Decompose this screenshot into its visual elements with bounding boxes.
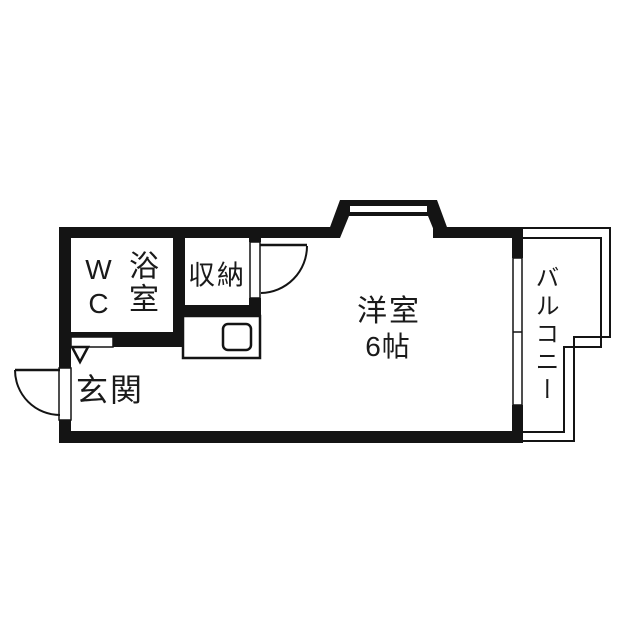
kitchen-sink bbox=[223, 324, 251, 350]
wc-door-swing-marker bbox=[72, 347, 88, 362]
western-room-size-label: 6帖 bbox=[365, 333, 411, 361]
bay-window-glass-line bbox=[350, 206, 427, 212]
left-wall-upper bbox=[59, 227, 71, 368]
entrance-doorway bbox=[59, 368, 71, 420]
wc-door bbox=[71, 337, 113, 362]
bay-window bbox=[326, 200, 451, 238]
right-wall-lower bbox=[512, 405, 523, 443]
main-room-doorway bbox=[250, 242, 260, 298]
balcony-window bbox=[513, 258, 522, 405]
top-wall-left bbox=[59, 227, 338, 238]
closet-label: 収納 bbox=[188, 263, 246, 290]
closet-bottom-wall bbox=[173, 305, 261, 316]
entrance-door-arc bbox=[15, 370, 60, 415]
wc-door-opening bbox=[71, 337, 113, 347]
main-room-door bbox=[250, 242, 307, 298]
western-room-label: 洋室 bbox=[357, 297, 421, 327]
bath-label: 浴室 bbox=[125, 250, 155, 316]
kitchen-unit bbox=[183, 316, 260, 358]
main-room-door-arc bbox=[261, 246, 307, 293]
right-wall-upper bbox=[512, 227, 523, 258]
bottom-wall bbox=[59, 431, 523, 443]
entrance-door bbox=[15, 368, 71, 420]
entrance-label: 玄関 bbox=[76, 374, 144, 406]
toilet-label: WC bbox=[84, 254, 112, 322]
floor-plan: WC 浴室 収納 洋室 6帖 玄関 バルコニー bbox=[0, 0, 640, 640]
balcony-label: バルコニー bbox=[532, 265, 556, 405]
bay-window-band bbox=[326, 200, 451, 238]
